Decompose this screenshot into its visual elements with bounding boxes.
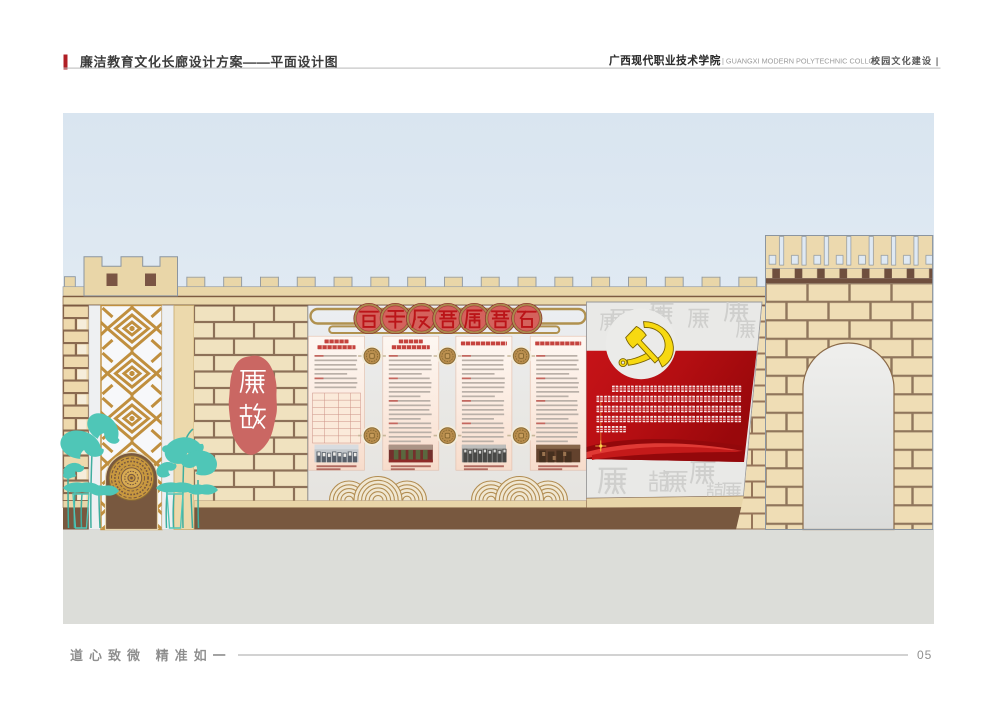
svg-text:广西现代职业技术学院: 广西现代职业技术学院 bbox=[609, 54, 721, 67]
svg-text:道心致微 精准如一: 道心致微 精准如一 bbox=[70, 648, 232, 663]
svg-text:廉洁教育文化长廊设计方案——平面设计图: 廉洁教育文化长廊设计方案——平面设计图 bbox=[80, 55, 338, 70]
svg-text:| GUANGXI MODERN POLYTECHNIC C: | GUANGXI MODERN POLYTECHNIC COLLGE | bbox=[722, 57, 883, 66]
svg-text:05: 05 bbox=[917, 648, 932, 662]
svg-text:校园文化建设 |: 校园文化建设 | bbox=[871, 55, 939, 66]
